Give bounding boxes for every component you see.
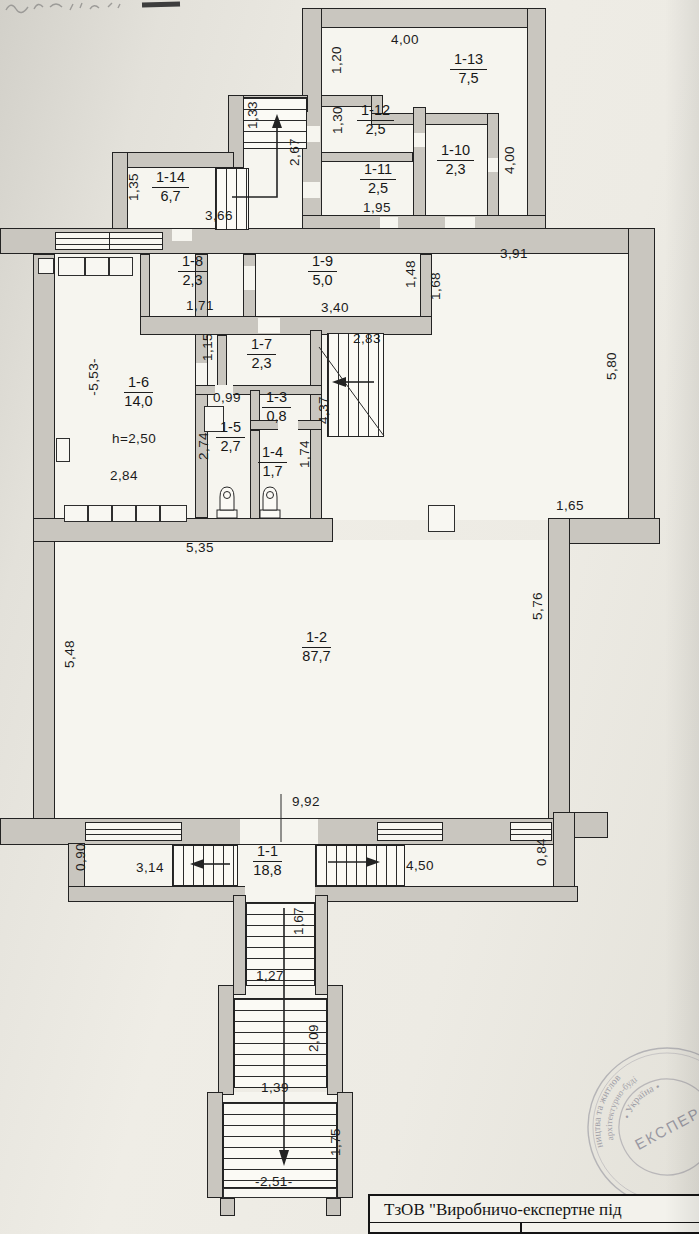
room-1-2-interior [55,540,548,820]
floor-plan: 1-137,5 1-122,5 1-102,3 1-112,5 1-146,7 … [0,0,699,1234]
dimension-label: 2,09 [306,1024,321,1052]
door-opening [488,158,498,172]
handwriting-mark [6,3,120,13]
dimension-label: 9,92 [292,794,320,809]
room-label-1-4: 1-41,7 [258,445,287,480]
room-label-1-14: 1-146,7 [152,170,189,205]
dimension-label: 4,00 [502,146,517,174]
dimension-label: 1,75 [328,1128,343,1156]
wall [140,316,432,335]
cabinet [109,257,133,276]
dimension-label: 2,74 [196,432,211,460]
room-label-1-6: 1-614,0 [124,375,153,410]
door-opening [303,182,320,198]
dimension-label: 4,37 [316,396,331,424]
dimension-label: 1,35 [126,173,141,201]
door-opening [414,133,425,147]
entrance-opening [240,819,318,844]
dimension-label: 1,20 [329,46,344,74]
handwriting-mark [142,4,180,5]
dimension-label: 3,66 [205,208,233,223]
wall [628,228,655,520]
cabinet [136,505,160,522]
svg-text:• Україна •: • Україна • [613,1079,668,1124]
cabinet [58,257,85,276]
svg-text:архітектурно-буді: архітектурно-буді [584,1073,658,1144]
room-label-1-5: 1-52,7 [216,420,245,455]
door-opening [258,318,280,333]
dimension-label: 2,84 [110,468,138,483]
dimension-label: 3,91 [500,246,528,261]
wall [220,1198,235,1216]
room-label-1-7: 1-72,3 [247,337,276,372]
dimension-label: 2,67 [287,138,302,166]
dimension-label: 0,84 [534,838,549,866]
title-block: ТзОВ "Виробничо-експертне під [368,1194,699,1234]
wall [207,1092,223,1198]
dimension-label: 1,30 [330,106,345,134]
door-opening [245,886,315,902]
room-label-1-12: 1-122,5 [357,103,394,138]
title-block-org: ТзОВ "Виробничо-експертне під [370,1196,699,1223]
window [85,822,182,841]
door-opening [196,363,207,387]
vestibule-stairs-left [172,845,238,886]
cabinet [88,505,112,522]
dimension-label: 1,95 [363,200,391,215]
dimension-label: 1,65 [556,498,584,513]
stair-base-edge [223,1188,337,1198]
cabinet [85,257,109,276]
dimension-label: 1,74 [297,440,312,468]
wall [548,518,570,845]
room-label-1-11: 1-112,5 [360,162,396,197]
wall [527,8,546,230]
dimension-label: 1,71 [186,298,214,313]
vestibule-stairs-right [315,845,405,886]
room-label-1-2: 1-287,7 [302,630,331,665]
room-label-1-8: 1-82,3 [178,254,207,289]
wall [233,895,246,995]
wall [218,985,234,1095]
dimension-label: 5,48 [62,640,77,668]
svg-text:ЕКСПЕР: ЕКСПЕР [632,1104,699,1153]
dimension-label: 5,76 [530,592,545,620]
title-block-row [370,1223,699,1232]
table-divider [520,1223,522,1232]
wall [33,254,55,844]
dimension-label: 5,35 [186,540,214,555]
dimension-label: 3,14 [136,860,164,875]
vent-box [38,258,54,274]
dimension-label: 2,83 [353,331,381,346]
door-opening [244,266,255,290]
window [377,822,443,841]
dimension-label: -5,53- [86,358,101,396]
dimension-label: 5,80 [604,352,619,380]
room-label-1-13: 1-137,5 [450,52,487,87]
dimension-label: 4,50 [406,858,434,873]
dimension-label: 0,90 [73,843,88,871]
vent-box [56,438,70,462]
height-note: h=2,50 [112,431,156,446]
room-label-1-1: 1-118,8 [253,844,282,879]
round-seal: ництва та житлов архітектурно-буді • Укр… [584,1044,699,1219]
door-opening [172,229,192,241]
staircase-main [327,333,384,437]
room-label-1-9: 1-95,0 [308,254,337,289]
dimension-label: 1,67 [291,907,306,935]
wall [413,107,426,230]
dimension-label: 3,40 [321,300,349,315]
dimension-label: 1,27 [256,968,284,983]
dimension-label: 4,00 [391,32,419,47]
wall [326,1198,341,1216]
dimension-label: 1,15 [200,333,215,361]
wall [217,335,227,390]
wall [112,152,234,168]
dimension-label: 0,99 [213,390,241,405]
svg-text:ництва та житлов: ництва та житлов [584,1070,647,1151]
wall [315,895,328,995]
cabinet [64,505,88,522]
dimension-label: 1,48 [403,260,418,288]
cabinet [112,505,136,522]
dimension-label: 1,33 [245,101,260,129]
room-label-1-10: 1-102,3 [437,143,474,178]
cabinet [160,505,187,522]
wall [327,985,343,1095]
dimension-label: 1,39 [261,1080,289,1095]
wall [302,8,546,28]
dimension-label: -2,51- [255,1174,293,1189]
column [428,505,455,532]
window-mullion [109,232,110,250]
room-label-1-3: 1-30,8 [262,390,291,425]
dimension-label: 1,68 [428,272,443,300]
